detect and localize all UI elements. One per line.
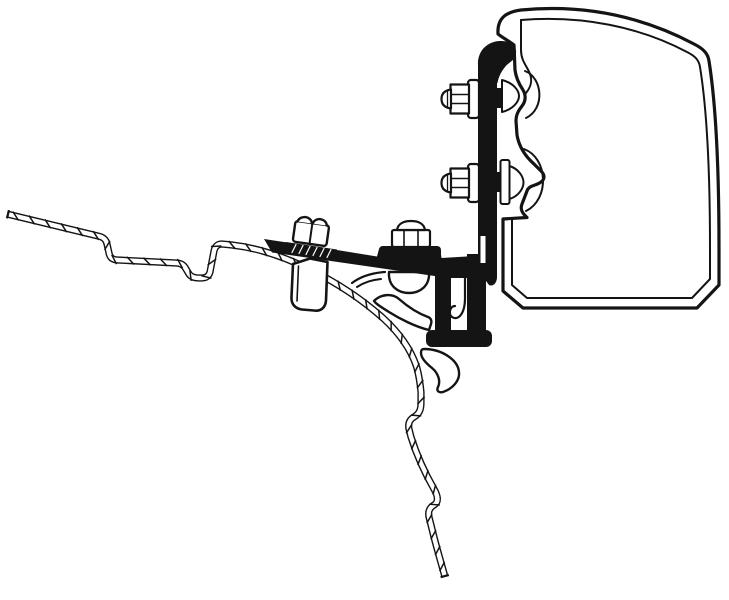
diagram-svg bbox=[0, 0, 729, 600]
rail-bolt-washer-lower bbox=[501, 160, 510, 204]
roof-rail-teardrop-profile bbox=[421, 349, 459, 392]
plate-nut-lower-dome-cap bbox=[442, 174, 452, 193]
awning-cassette-outer-profile bbox=[498, 9, 719, 308]
adapter-hook-foot bbox=[426, 330, 492, 347]
diagram-page bbox=[0, 0, 729, 600]
roof-rail-round-bead bbox=[389, 272, 429, 293]
vehicle-roof-sheet-profile-core bbox=[7, 214, 445, 577]
vehicle-roof-sheet-profile-hatch-tick bbox=[429, 504, 439, 505]
roof-bolt-shaft-cylinder bbox=[291, 259, 327, 311]
roof-rail-lip-line-inner bbox=[357, 279, 381, 287]
arm-plate-joint-slit bbox=[481, 236, 486, 263]
vehicle-roof-sheet-profile-outline bbox=[7, 214, 445, 577]
vehicle-roof-sheet-profile-hatch-tick bbox=[379, 310, 380, 320]
plate-nut-upper-hex bbox=[451, 85, 470, 114]
plate-nut-upper-dome-cap bbox=[442, 90, 452, 109]
adapter-hook-inner-strip bbox=[435, 266, 451, 336]
vehicle-roof-sheet-profile-hatch-tick bbox=[411, 415, 421, 416]
plate-nut-lower-hex bbox=[451, 169, 470, 198]
arm-bolt-hex-body bbox=[392, 230, 430, 247]
vehicle-roof-sheet-profile-hatch-tick bbox=[211, 246, 221, 247]
rail-bolt-head-dome-upper bbox=[502, 80, 519, 112]
adapter-plate-top-hook bbox=[478, 41, 516, 83]
rail-bolt-head-dome-lower bbox=[510, 166, 524, 199]
arm-bolt-dome-cap bbox=[397, 221, 425, 230]
roof-rail-wing-profile bbox=[374, 295, 431, 330]
